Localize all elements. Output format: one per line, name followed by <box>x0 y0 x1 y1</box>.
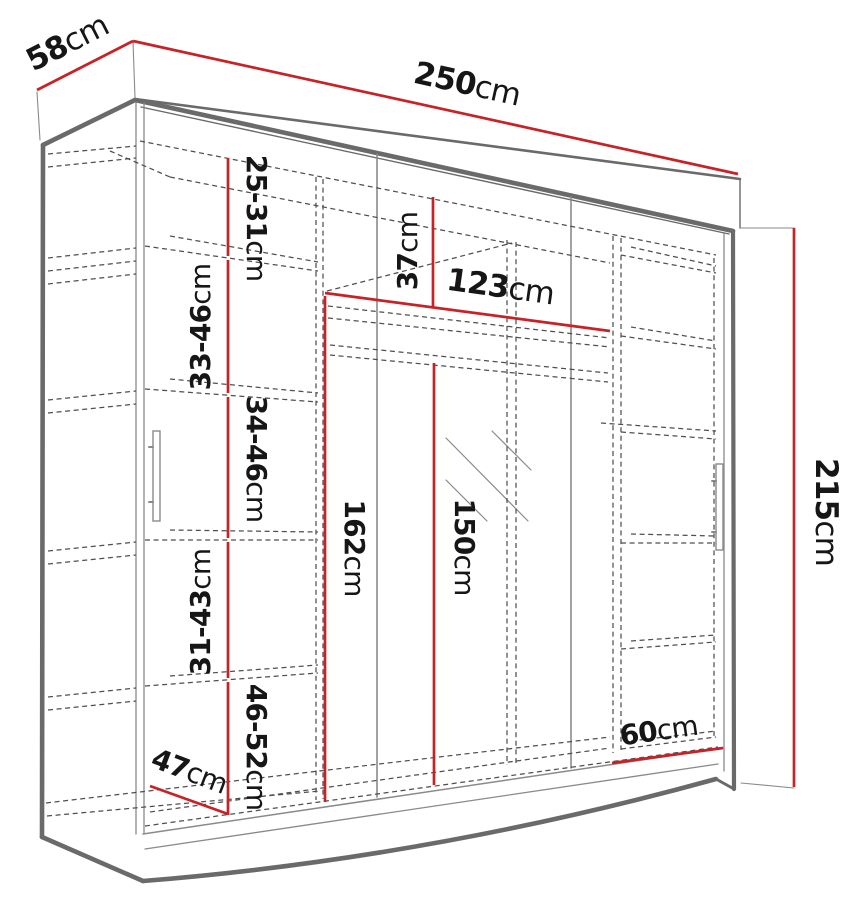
dim-label-162: 162cm <box>338 499 371 596</box>
dim-label-right-width: 60cm <box>618 709 700 753</box>
dimension-extension-lines <box>37 41 794 788</box>
dim-label-shelf-gap-4: 31-43cm <box>184 549 217 676</box>
wardrobe-drawing: 58cm 250cm 215cm 25-31cm 33-46cm 34-46cm… <box>0 0 845 904</box>
wardrobe-dimension-diagram: 58cm 250cm 215cm 25-31cm 33-46cm 34-46cm… <box>0 0 845 904</box>
dim-label-mid-width: 123cm <box>444 262 556 313</box>
dim-label-shelf-gap-2: 33-46cm <box>184 264 217 391</box>
dim-label-inner-depth: 47cm <box>147 742 232 801</box>
dim-label-height: 215cm <box>808 458 844 566</box>
dim-label-depth: 58cm <box>20 7 114 79</box>
dim-label-shelf-gap-bottom: 46-52cm <box>240 684 273 811</box>
dim-label-150: 150cm <box>448 498 481 595</box>
door-handle-left <box>149 431 160 521</box>
dim-label-top-gap: 37cm <box>391 212 424 290</box>
dim-label-shelf-gap-3: 34-46cm <box>240 396 273 523</box>
dim-label-shelf-gap-top: 25-31cm <box>240 155 273 282</box>
